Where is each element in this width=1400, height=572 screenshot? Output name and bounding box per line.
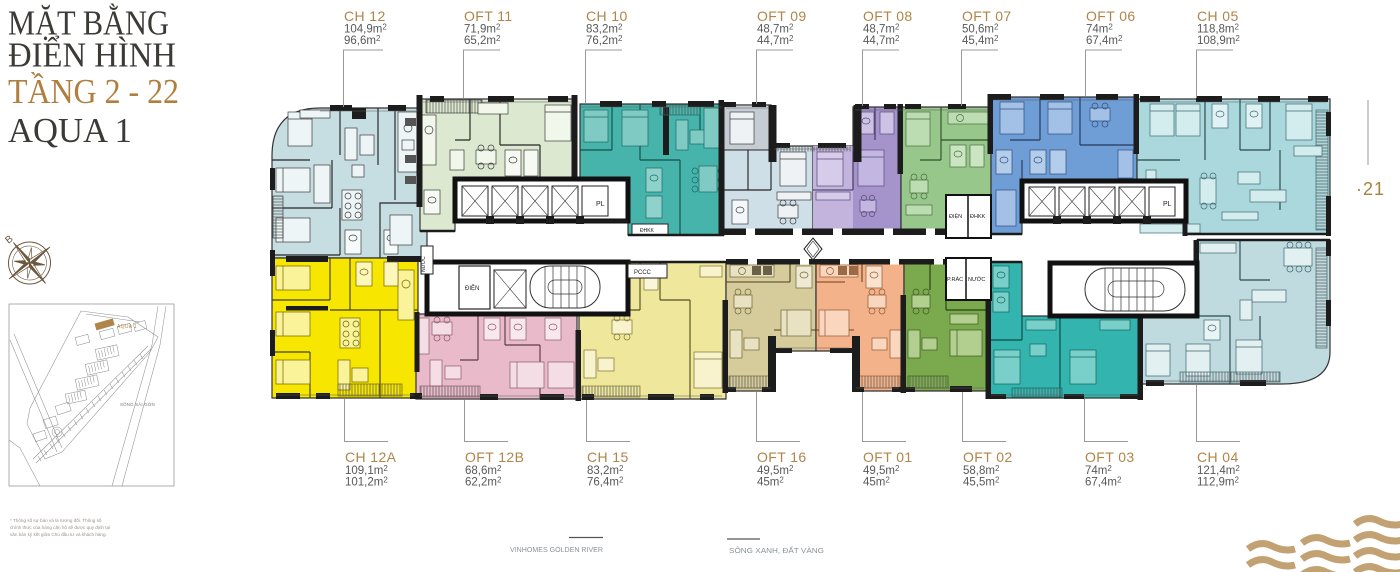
svg-text:* Thông số sự bán và là tương: * Thông số sự bán và là tương đối. Thông… — [10, 518, 102, 523]
svg-text:45,5m2: 45,5m2 — [963, 476, 1000, 489]
svg-text:104,9m2: 104,9m2 — [344, 23, 387, 36]
svg-text:chính thức của hàng căn hộ sẽ: chính thức của hàng căn hộ sẽ được quy đ… — [10, 524, 110, 530]
svg-text:NƯỚC: NƯỚC — [968, 276, 985, 283]
svg-text:CH 04: CH 04 — [1197, 449, 1239, 465]
svg-text:OFT 02: OFT 02 — [963, 449, 1013, 465]
svg-text:49,5m2: 49,5m2 — [863, 464, 900, 477]
svg-text:P.RÁC: P.RÁC — [947, 276, 963, 283]
svg-text:·21: ·21 — [1356, 179, 1385, 199]
svg-text:VINHOMES GOLDEN RIVER: VINHOMES GOLDEN RIVER — [510, 545, 604, 554]
svg-text:OFT 16: OFT 16 — [757, 449, 807, 465]
svg-text:văn bản ký kết giữa Chủ đầu tư: văn bản ký kết giữa Chủ đầu tư và khách … — [10, 531, 107, 537]
svg-text:76,2m2: 76,2m2 — [586, 34, 623, 47]
svg-text:AQUA 1: AQUA 1 — [117, 324, 137, 330]
svg-text:109,1m2: 109,1m2 — [345, 464, 388, 477]
svg-text:44,7m2: 44,7m2 — [863, 34, 900, 47]
svg-text:ĐIỆN: ĐIỆN — [949, 212, 962, 220]
svg-text:45,4m2: 45,4m2 — [962, 34, 999, 47]
svg-text:NƯỚC: NƯỚC — [420, 256, 427, 272]
svg-text:101,2m2: 101,2m2 — [345, 476, 388, 489]
svg-text:96,6m2: 96,6m2 — [344, 34, 381, 47]
svg-text:PL: PL — [596, 201, 605, 208]
svg-text:49,5m2: 49,5m2 — [757, 464, 794, 477]
svg-text:ĐHKK: ĐHKK — [640, 228, 655, 234]
svg-text:OFT 12B: OFT 12B — [465, 449, 524, 465]
svg-text:62,2m2: 62,2m2 — [465, 476, 502, 489]
svg-text:CH 15: CH 15 — [587, 449, 629, 465]
svg-text:67,4m2: 67,4m2 — [1086, 34, 1123, 47]
svg-text:44,7m2: 44,7m2 — [757, 34, 794, 47]
svg-text:OFT 11: OFT 11 — [464, 8, 513, 24]
svg-text:OFT 03: OFT 03 — [1085, 449, 1135, 465]
svg-text:112,9m2: 112,9m2 — [1197, 476, 1240, 489]
svg-text:PCCC: PCCC — [634, 270, 652, 276]
svg-text:ĐIỆN: ĐIỆN — [465, 284, 479, 292]
svg-text:OFT 08: OFT 08 — [863, 8, 913, 24]
svg-text:OFT 07: OFT 07 — [962, 8, 1012, 24]
svg-text:SÔNG XANH, ĐẤT VÀNG: SÔNG XANH, ĐẤT VÀNG — [729, 545, 824, 555]
svg-text:ĐHKK: ĐHKK — [970, 214, 986, 220]
svg-text:118,8m2: 118,8m2 — [1197, 23, 1240, 36]
svg-text:67,4m2: 67,4m2 — [1085, 476, 1122, 489]
svg-text:SÔNG SÀI GÒN: SÔNG SÀI GÒN — [120, 402, 155, 407]
svg-text:108,9m2: 108,9m2 — [1197, 34, 1240, 47]
svg-text:CH 12: CH 12 — [344, 8, 386, 24]
svg-text:ĐIỂN HÌNH: ĐIỂN HÌNH — [8, 35, 176, 75]
svg-text:OFT 01: OFT 01 — [863, 449, 913, 465]
svg-text:PL: PL — [1163, 201, 1172, 208]
svg-text:76,4m2: 76,4m2 — [587, 476, 624, 489]
svg-text:CH 12A: CH 12A — [345, 449, 397, 465]
svg-text:65,2m2: 65,2m2 — [464, 34, 501, 47]
svg-text:CH 05: CH 05 — [1197, 8, 1239, 24]
svg-text:OFT 09: OFT 09 — [757, 8, 807, 24]
svg-text:TẦNG 2 - 22: TẦNG 2 - 22 — [8, 71, 179, 111]
svg-text:AQUA 1: AQUA 1 — [8, 111, 132, 150]
